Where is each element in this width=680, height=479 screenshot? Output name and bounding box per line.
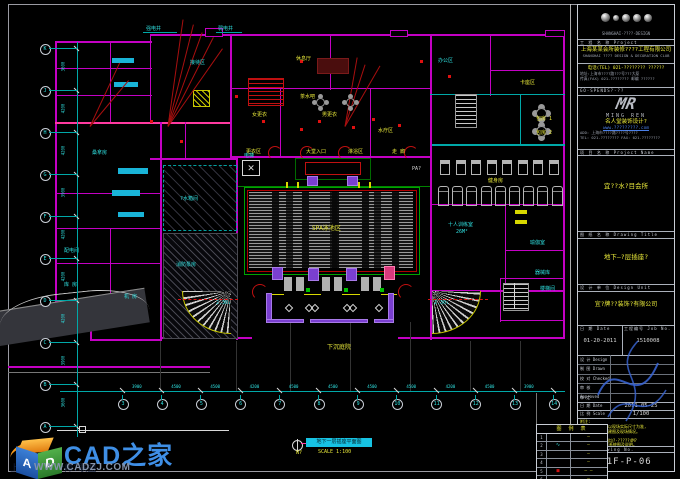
axis-dim-bottom: 4500 (367, 384, 377, 389)
gym-equipment-icon (502, 160, 512, 175)
plan-label: 休息厅 (296, 56, 311, 62)
gym-equipment-icon (440, 160, 450, 175)
axis-dim-bottom: 3900 (132, 384, 142, 389)
plan-label: 器械库 (535, 270, 550, 276)
treadmill-icon (537, 186, 548, 206)
legend-cell: – (570, 459, 607, 466)
legend-title: 图 例 表 (537, 425, 607, 434)
legend-table: 图 例 表 1–2∿–3–4–5■– –6– (536, 424, 608, 479)
plan-label: 强电井 (146, 26, 161, 32)
treadmill-icon (452, 186, 463, 206)
hatched-room-upper (163, 165, 237, 231)
axis-bubble-bottom: 3 (118, 399, 129, 410)
gym-equipment-icon (456, 160, 466, 175)
plan-label: 机 房 (124, 294, 137, 300)
axis-dim-left: 3600 (60, 398, 65, 408)
axis-stem (49, 342, 77, 343)
plan-label: 2.30↓ (434, 300, 449, 306)
axis-dim-bottom: 4200 (446, 384, 456, 389)
stair-top-right (455, 94, 477, 128)
axis-bubble-left: J (40, 86, 51, 97)
axis-stem (122, 395, 123, 400)
gym-equipment-icon (533, 160, 543, 175)
axis-stem (49, 258, 77, 259)
axis-stem (49, 132, 77, 133)
plan-label: 2.30↓ (216, 300, 231, 306)
axis-dim-left: 3600 (60, 62, 65, 72)
treadmill-icon (481, 186, 492, 206)
axis-stem (49, 426, 77, 427)
plan-title-bar: 地下一层插座平面图 (306, 438, 372, 447)
axis-stem (318, 395, 319, 400)
axis-stem (49, 216, 77, 217)
legend-row: 2∿– (537, 442, 607, 450)
plan-label: 瑜伽室 (530, 240, 545, 246)
elevator-shaft: ✕ (242, 160, 260, 176)
legend-cell (546, 459, 571, 466)
plan-label: 包房 1 (536, 116, 552, 122)
gym-equipment-icon (471, 160, 481, 175)
plan-scale-note: SCALE 1:100 (318, 449, 351, 455)
mr-name-cn: 名人堂装饰设计? (578, 119, 674, 126)
axis-bubble-bottom: 7 (274, 399, 285, 410)
plan-label: 女更衣 (252, 112, 267, 118)
plan-label: 走 廊 (392, 149, 405, 155)
design-unit-label: 设 计 单 位 Design Unit (578, 284, 674, 291)
treadmill-icon (523, 186, 534, 206)
axis-stem (436, 395, 437, 400)
legend-cell: – (570, 442, 607, 449)
signature-scribbles (586, 335, 670, 425)
axis-dim-left: 3900 (60, 356, 65, 366)
cadzj-url-text: WWW.CADZJ.COM (34, 462, 131, 473)
plan-label: 库 房 (64, 282, 77, 288)
job-no-label: 工程编号 Job No. (622, 325, 674, 332)
axis-bubble-left: B (40, 380, 51, 391)
treadmill-icon (552, 186, 563, 206)
plan-label: 接待区 (190, 60, 205, 66)
stair-bottom-right (503, 283, 529, 311)
axis-bubble-left: E (40, 254, 51, 265)
plan-label: 办公区 (438, 58, 453, 64)
axis-bubble-left: F (40, 212, 51, 223)
project-name: 宜??水?目会所 (578, 183, 674, 190)
axis-bubble-left: G (40, 170, 51, 181)
legend-cell: – (570, 434, 607, 441)
gym-equipment-icon (549, 160, 559, 175)
plan-label: 水疗区 (378, 128, 393, 134)
axis-stem (475, 395, 476, 400)
cad-sheet: ✕ (0, 0, 680, 479)
plan-label: 包房 2 (536, 130, 552, 136)
axis-dim-left: 4200 (60, 272, 65, 282)
axis-bubble-bottom: 14 (549, 399, 560, 410)
axis-stem (279, 395, 280, 400)
qualification-no: GO-SPENDS?-?? (578, 87, 674, 94)
plan-label: 26M² (456, 229, 468, 235)
gym-equipment-icon (487, 160, 497, 175)
axis-dim-bottom: 4500 (210, 384, 220, 389)
legend-cell: ■ (546, 468, 571, 475)
axis-bubble-bottom: 10 (392, 399, 403, 410)
axis-dim-bottom: 4500 (328, 384, 338, 389)
company-logo-section: SHANGHAI·????·DESIGN (578, 5, 674, 40)
axis-bubble-bottom: 11 (431, 399, 442, 410)
plan-label: ?水箱间 (180, 196, 198, 202)
drawing-title: 地下—?层插座? (578, 254, 674, 261)
legend-row: 1– (537, 434, 607, 442)
axis-stem (49, 90, 77, 91)
treadmill-icon (438, 186, 449, 206)
logo-sphere (601, 13, 610, 22)
legend-row: 4– (537, 459, 607, 467)
axis-dim-bottom: 4200 (250, 384, 260, 389)
legend-cell: – (570, 451, 607, 458)
treadmill-icon (495, 186, 506, 206)
axis-stem (161, 395, 162, 400)
axis-stem (514, 395, 515, 400)
axis-bubble-bottom: 13 (510, 399, 521, 410)
gym-equipment-icon (518, 160, 528, 175)
axis-stem (240, 395, 241, 400)
logo-sphere (633, 14, 641, 22)
mr-logo: MR (578, 95, 674, 113)
logo-caption: SHANGHAI·????·DESIGN (578, 31, 674, 36)
axis-dim-bottom: 4500 (406, 384, 416, 389)
axis-dim-left: 4200 (60, 104, 65, 114)
mr-phone: TEL: 021-???????? FAX: 021-???????? (578, 136, 674, 141)
company-name-en: SHANGHAI ???? DESIGN & DECORATION CLUB (578, 54, 674, 59)
plan-label: 淋浴区 (348, 149, 363, 155)
drawing-title-label: 图 纸 名 称 Drawing Title (578, 231, 674, 238)
plan-label: 桑拿房 (92, 150, 107, 156)
axis-dim-left: 4200 (60, 146, 65, 156)
axis-bubble-left: A (40, 422, 51, 433)
axis-bubble-left: C (40, 338, 51, 349)
company-logo-spheres (578, 13, 674, 22)
axis-stem (49, 384, 77, 385)
legend-row: 3– (537, 451, 607, 459)
axis-stem (200, 395, 201, 400)
treadmill-icon (509, 186, 520, 206)
design-firm-section: MR MING REN 名人堂装饰设计? www.?????????.com A… (578, 95, 674, 150)
north-label: N? (296, 450, 302, 456)
plan-label: PA? (412, 166, 421, 172)
axis-bubble-left: K (40, 44, 51, 55)
legend-cell (546, 434, 571, 441)
axis-bubble-bottom: 4 (157, 399, 168, 410)
contact-line3: 传真(FAX) 021-???????? 邮编 ?????? (578, 77, 674, 82)
plan-label: 男更衣 (322, 112, 337, 118)
axis-stem (49, 48, 77, 49)
axis-stem (553, 395, 554, 400)
axis-dim-left: 3900 (60, 188, 65, 198)
treadmill-icon (466, 186, 477, 206)
date-label: 日 期 Date (578, 325, 622, 332)
plan-label: 大堂入口 (306, 149, 326, 155)
plan-label: 楼梯间 (540, 286, 555, 292)
axis-dim-left: 4200 (60, 314, 65, 324)
axis-bubble-left: D (40, 296, 51, 307)
axis-dim-left: 4200 (60, 230, 65, 240)
axis-bubble-left: H (40, 128, 51, 139)
logo-sphere (644, 14, 652, 22)
plan-label: 电梯 (244, 153, 254, 159)
plan-label: 健身房 (488, 178, 503, 184)
axis-dim-bottom: 4500 (485, 384, 495, 389)
axis-bubble-bottom: 8 (314, 399, 325, 410)
plan-label: 下沉庭院 (327, 345, 351, 351)
legend-cell: ∿ (546, 442, 571, 449)
plan-label: SPA泳池区 (312, 226, 341, 232)
plan-label: 弱电井 (218, 26, 233, 32)
plan-label: 消防泵房 (176, 262, 196, 268)
plan-label: 十人训练室 (448, 222, 473, 228)
legend-cell (546, 451, 571, 458)
curved-stair-right (432, 291, 481, 334)
logo-sphere (613, 15, 619, 21)
axis-stem (49, 300, 77, 301)
plan-label: 茶水吧 (300, 94, 315, 100)
axis-bubble-bottom: 6 (235, 399, 246, 410)
stair-top-left (248, 78, 284, 106)
axis-bubble-bottom: 9 (353, 399, 364, 410)
axis-stem (396, 395, 397, 400)
axis-bubble-bottom: 12 (470, 399, 481, 410)
legend-cell: – – (570, 468, 607, 475)
axis-dim-bottom: 4500 (289, 384, 299, 389)
axis-stem (49, 174, 77, 175)
title-block: SHANGHAI·????·DESIGN 工 程 名 称 Project 上海某… (577, 4, 675, 472)
legend-row: 5■– – (537, 468, 607, 476)
plan-label: 卡座区 (520, 80, 535, 86)
axis-dim-bottom: 4500 (171, 384, 181, 389)
design-unit: 宜?牌??装饰?有限公司 (578, 301, 674, 308)
axis-bubble-bottom: 5 (196, 399, 207, 410)
logo-sphere (622, 14, 630, 22)
axis-dim-bottom: 3900 (524, 384, 534, 389)
axis-stem (357, 395, 358, 400)
